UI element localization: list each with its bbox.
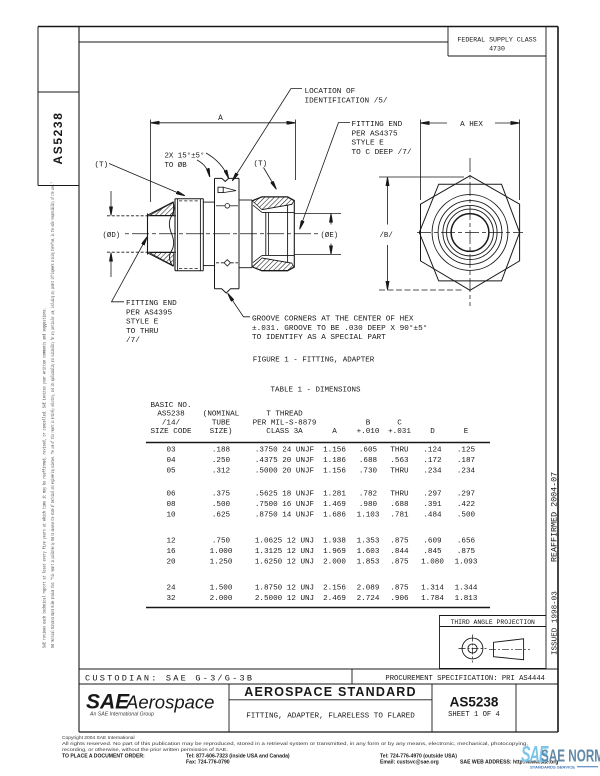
svg-text:STYLE E: STYLE E — [126, 319, 159, 327]
svg-text:.781: .781 — [390, 512, 409, 520]
svg-text:.906: .906 — [390, 595, 409, 603]
svg-text:.5000 20 UNJF: .5000 20 UNJF — [255, 468, 315, 476]
svg-text:1.500: 1.500 — [210, 585, 233, 593]
svg-text:D: D — [430, 428, 435, 436]
svg-text:IDENTIFICATION /5/: IDENTIFICATION /5/ — [305, 97, 388, 105]
svg-text:THIRD ANGLE PROJECTION: THIRD ANGLE PROJECTION — [451, 619, 536, 626]
svg-text:.730: .730 — [359, 468, 378, 476]
svg-text:.188: .188 — [212, 447, 231, 455]
svg-text:.4375 20 UNJF: .4375 20 UNJF — [255, 457, 315, 465]
svg-text:.782: .782 — [359, 491, 378, 499]
svg-text:24: 24 — [166, 585, 176, 593]
svg-text:.8750 14 UNJF: .8750 14 UNJF — [255, 512, 315, 520]
svg-text:SIZE CODE: SIZE CODE — [150, 428, 191, 436]
svg-text:THRU: THRU — [390, 447, 409, 455]
svg-text:2.089: 2.089 — [357, 585, 380, 593]
svg-text:2.000: 2.000 — [210, 595, 233, 603]
svg-text:.312: .312 — [212, 468, 231, 476]
svg-text:.3750 24 UNJF: .3750 24 UNJF — [255, 447, 315, 455]
svg-text:(NOMINAL: (NOMINAL — [203, 411, 240, 419]
svg-text:16: 16 — [166, 548, 176, 556]
svg-text:CLASS 3A: CLASS 3A — [266, 428, 303, 436]
svg-text:.7500 16 UNJF: .7500 16 UNJF — [255, 501, 315, 509]
svg-text:THRU: THRU — [390, 491, 409, 499]
svg-text:Aerospace: Aerospace — [125, 692, 214, 713]
svg-text:AS5238: AS5238 — [157, 411, 185, 419]
svg-text:.609: .609 — [423, 538, 442, 546]
svg-text:TO C DEEP /7/: TO C DEEP /7/ — [352, 149, 412, 157]
svg-text:B: B — [366, 419, 371, 427]
svg-text:1.314: 1.314 — [421, 585, 444, 593]
svg-text:1.6250 12 UNJ: 1.6250 12 UNJ — [255, 559, 314, 567]
svg-text:08: 08 — [166, 501, 176, 509]
svg-text:±.031. GROOVE TO BE .030 DEEP: ±.031. GROOVE TO BE .030 DEEP X 90°±5° — [252, 324, 427, 333]
svg-text:BASIC NO.: BASIC NO. — [150, 402, 191, 410]
svg-text:TO IDENTIFY AS A SPECIAL PART: TO IDENTIFY AS A SPECIAL PART — [252, 334, 386, 342]
svg-text:TO PLACE A DOCUMENT ORDER:: TO PLACE A DOCUMENT ORDER: — [62, 754, 145, 760]
svg-text:SAE: SAE — [86, 691, 130, 714]
svg-text:.563: .563 — [390, 457, 409, 465]
svg-text:.297: .297 — [457, 491, 475, 499]
svg-text:STYLE E: STYLE E — [352, 140, 385, 148]
svg-text:2X 15°±5°: 2X 15°±5° — [165, 152, 205, 161]
svg-text:1.344: 1.344 — [455, 585, 478, 593]
svg-text:1.8750 12 UNJ: 1.8750 12 UNJ — [255, 585, 314, 593]
svg-text:An SAE International Group: An SAE International Group — [89, 712, 154, 718]
svg-text:T THREAD: T THREAD — [266, 411, 303, 419]
svg-text:C: C — [397, 419, 402, 427]
svg-text:12: 12 — [166, 538, 176, 546]
svg-text:SIZE): SIZE) — [210, 428, 233, 436]
svg-text:1.156: 1.156 — [323, 447, 346, 455]
svg-text:.844: .844 — [390, 548, 409, 556]
svg-text:.500: .500 — [212, 501, 231, 509]
svg-text:4730: 4730 — [489, 46, 505, 53]
svg-text:2.469: 2.469 — [323, 595, 346, 603]
svg-text:.234: .234 — [457, 468, 476, 476]
svg-text:1.813: 1.813 — [455, 595, 478, 603]
svg-text:2.724: 2.724 — [357, 595, 380, 603]
svg-text:20: 20 — [166, 559, 176, 567]
svg-text:PROCUREMENT SPECIFICATION: PRI: PROCUREMENT SPECIFICATION: PRI AS4444 — [385, 675, 545, 683]
svg-text:1.080: 1.080 — [421, 559, 444, 567]
svg-text:Fax: 724-776-0790: Fax: 724-776-0790 — [186, 760, 230, 766]
svg-text:AEROSPACE STANDARD: AEROSPACE STANDARD — [244, 685, 417, 699]
svg-text:LOCATION OF: LOCATION OF — [305, 88, 356, 96]
svg-text:FITTING END: FITTING END — [352, 121, 403, 129]
svg-text:PER AS4395: PER AS4395 — [126, 309, 173, 317]
svg-text:STANDARDS SERVICE: STANDARDS SERVICE — [530, 765, 576, 769]
svg-text:1.093: 1.093 — [455, 559, 478, 567]
svg-text:FITTING END: FITTING END — [126, 300, 177, 308]
svg-text:+.010: +.010 — [357, 428, 380, 436]
svg-text:05: 05 — [166, 468, 176, 476]
svg-text:(ØE): (ØE) — [321, 231, 339, 240]
svg-text:.875: .875 — [390, 585, 409, 593]
svg-text:ISSUED 1998-03: ISSUED 1998-03 — [552, 591, 560, 655]
svg-text:(T): (T) — [95, 161, 109, 169]
svg-text:.375: .375 — [212, 491, 231, 499]
svg-text:1.784: 1.784 — [421, 595, 444, 603]
svg-text:All rights reserved. No part o: All rights reserved. No part of this pub… — [62, 741, 528, 747]
svg-text:32: 32 — [166, 595, 176, 603]
svg-text:.234: .234 — [423, 468, 442, 476]
svg-text:.172: .172 — [423, 457, 442, 465]
svg-text:Email: custsvc@sae.org: Email: custsvc@sae.org — [380, 760, 439, 766]
svg-text:1.469: 1.469 — [323, 501, 346, 509]
svg-text:10: 10 — [166, 512, 176, 520]
svg-text:.688: .688 — [359, 457, 378, 465]
svg-text:1.103: 1.103 — [357, 512, 380, 520]
svg-text:AS5238: AS5238 — [450, 695, 499, 710]
svg-text:SHEET 1 OF 4: SHEET 1 OF 4 — [448, 711, 500, 719]
svg-text:/7/: /7/ — [126, 337, 140, 345]
svg-text:.391: .391 — [423, 501, 442, 509]
svg-text:.500: .500 — [457, 512, 476, 520]
svg-text:Tel: 724-776-4970 (outside USA: Tel: 724-776-4970 (outside USA) — [380, 754, 457, 760]
svg-text:2.156: 2.156 — [323, 585, 346, 593]
svg-text:REAFFIRMED 2004-07: REAFFIRMED 2004-07 — [550, 472, 560, 562]
svg-text:(ØD): (ØD) — [103, 231, 121, 240]
svg-text:Tel: 877-606-7323 (inside USA: Tel: 877-606-7323 (inside USA and Canada… — [186, 754, 290, 760]
svg-text:FITTING, ADAPTER, FLARELESS TO: FITTING, ADAPTER, FLARELESS TO FLARED — [246, 713, 415, 721]
svg-text:.625: .625 — [212, 512, 231, 520]
svg-text:.250: .250 — [212, 457, 231, 465]
svg-text:FEDERAL SUPPLY CLASS: FEDERAL SUPPLY CLASS — [457, 37, 536, 44]
svg-text:.875: .875 — [390, 538, 409, 546]
svg-text:.605: .605 — [359, 447, 378, 455]
svg-text:A: A — [332, 428, 337, 436]
svg-text:.124: .124 — [423, 447, 442, 455]
svg-text:.980: .980 — [359, 501, 378, 509]
svg-text:1.938: 1.938 — [323, 538, 346, 546]
svg-text:1.000: 1.000 — [210, 548, 233, 556]
svg-text:1.3125 12 UNJ: 1.3125 12 UNJ — [255, 548, 314, 556]
svg-text:TO THRU: TO THRU — [126, 328, 159, 336]
svg-text:.875: .875 — [390, 559, 409, 567]
svg-text:2.000: 2.000 — [323, 559, 346, 567]
svg-text:1.969: 1.969 — [323, 548, 346, 556]
svg-text:PER AS4375: PER AS4375 — [352, 130, 399, 138]
svg-text:FIGURE 1 - FITTING, ADAPTER: FIGURE 1 - FITTING, ADAPTER — [253, 357, 375, 365]
svg-text:03: 03 — [166, 447, 176, 455]
svg-text:(T): (T) — [254, 160, 268, 168]
svg-text:SAE Technical Standards Board: SAE Technical Standards Board Rules prov… — [50, 182, 56, 648]
svg-text:1.603: 1.603 — [357, 548, 380, 556]
svg-text:/14/: /14/ — [162, 419, 181, 427]
svg-text:1.281: 1.281 — [323, 491, 346, 499]
svg-text:+.031: +.031 — [388, 428, 411, 436]
svg-text:.484: .484 — [423, 512, 442, 520]
svg-text:CUSTODIAN: SAE G-3/G-3B: CUSTODIAN: SAE G-3/G-3B — [85, 673, 254, 683]
svg-text:.656: .656 — [457, 538, 476, 546]
svg-text:A HEX: A HEX — [460, 121, 483, 129]
svg-text:TO ØB: TO ØB — [165, 161, 188, 170]
svg-text:1.686: 1.686 — [323, 512, 346, 520]
svg-text:2.5000 12 UNJ: 2.5000 12 UNJ — [255, 595, 314, 603]
svg-text:1.186: 1.186 — [323, 457, 346, 465]
svg-text:E: E — [464, 428, 469, 436]
svg-text:TABLE 1 - DIMENSIONS: TABLE 1 - DIMENSIONS — [270, 387, 361, 395]
svg-text:.187: .187 — [457, 457, 475, 465]
svg-text:TUBE: TUBE — [212, 419, 231, 427]
svg-text:04: 04 — [166, 457, 176, 465]
svg-text:1.156: 1.156 — [323, 468, 346, 476]
svg-text:Copyright 2004 SAE Internation: Copyright 2004 SAE International — [62, 735, 135, 741]
svg-text:1.0625 12 UNJ: 1.0625 12 UNJ — [255, 538, 314, 546]
svg-text:06: 06 — [166, 491, 176, 499]
svg-text:SAE NORM: SAE NORM — [541, 746, 600, 766]
svg-text:.875: .875 — [457, 548, 476, 556]
svg-text:AS5238: AS5238 — [51, 112, 65, 165]
svg-text:SAE reviews each technical rep: SAE reviews each technical report at lea… — [42, 307, 48, 648]
svg-text:.422: .422 — [457, 501, 476, 509]
svg-text:.845: .845 — [423, 548, 442, 556]
svg-text:.297: .297 — [423, 491, 441, 499]
svg-text:1.250: 1.250 — [210, 559, 233, 567]
svg-text:/B/: /B/ — [380, 232, 394, 240]
svg-text:.688: .688 — [390, 501, 409, 509]
svg-text:.125: .125 — [457, 447, 476, 455]
svg-text:.750: .750 — [212, 538, 231, 546]
svg-text:PER MIL-S-8879: PER MIL-S-8879 — [253, 419, 317, 427]
svg-text:A: A — [218, 115, 223, 123]
svg-text:1.353: 1.353 — [357, 538, 380, 546]
svg-text:.5625 18 UNJF: .5625 18 UNJF — [255, 491, 315, 499]
svg-text:recording, or otherwise, witho: recording, or otherwise, without the pri… — [62, 747, 228, 753]
svg-text:GROOVE CORNERS AT THE CENTER O: GROOVE CORNERS AT THE CENTER OF HEX — [252, 316, 414, 324]
svg-text:THRU: THRU — [390, 468, 409, 476]
svg-text:1.853: 1.853 — [357, 559, 380, 567]
